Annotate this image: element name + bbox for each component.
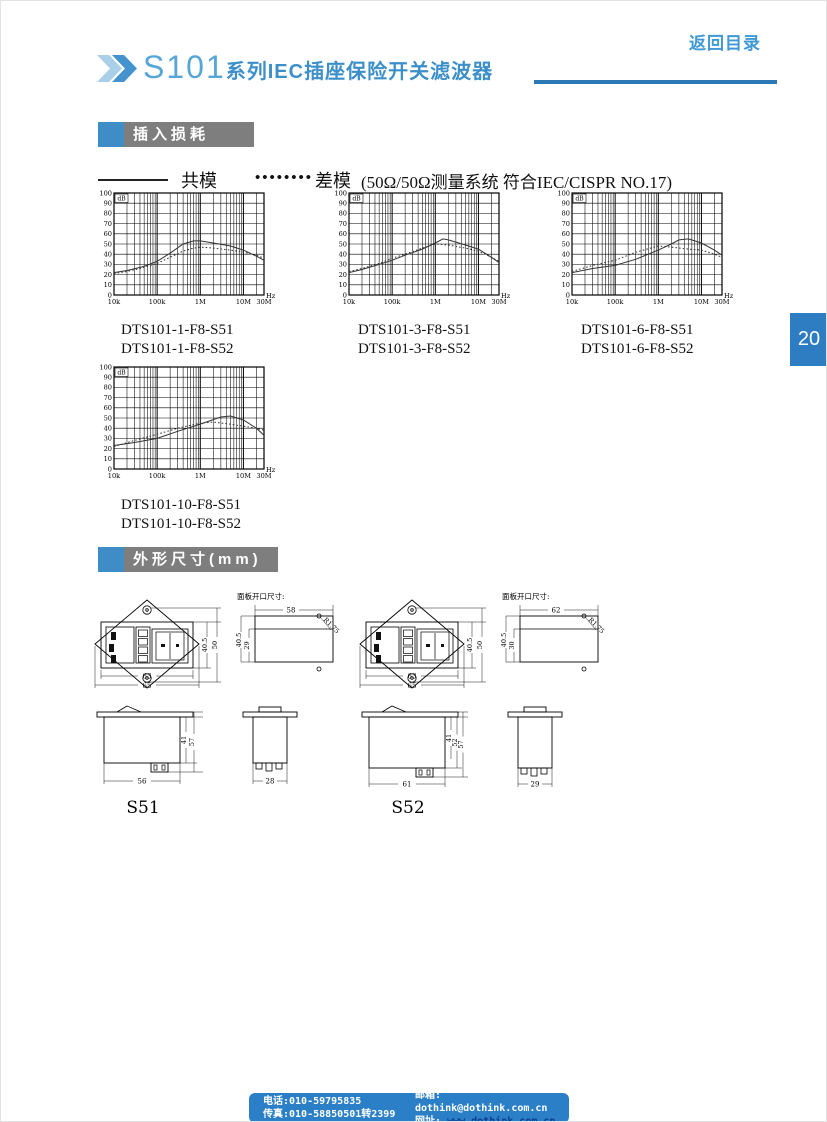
dimension-label: R1.75 bbox=[322, 616, 341, 635]
chart-caption-4: DTS101-10-F8-S51 DTS101-10-F8-S52 bbox=[121, 496, 301, 534]
dimension-label: 41 bbox=[180, 736, 188, 744]
svg-text:40: 40 bbox=[562, 251, 570, 259]
svg-text:10k: 10k bbox=[108, 298, 121, 306]
footer-contact-bar: 电话:010-59795835 传真:010-58850501转2399 邮箱:… bbox=[249, 1093, 569, 1122]
dimension-label: 40.5 bbox=[466, 638, 474, 652]
model-code: DTS101-1-F8-S52 bbox=[121, 340, 301, 359]
svg-text:100: 100 bbox=[557, 189, 570, 197]
web-label: 网址: bbox=[415, 1116, 441, 1122]
dimension-label: 29 bbox=[531, 781, 540, 789]
dimension-label: 面板开口尺寸: bbox=[237, 591, 285, 601]
page-number-tab: 20 bbox=[790, 313, 827, 366]
section-dimensions: 外形尺寸(mm) bbox=[98, 547, 278, 572]
website-link[interactable]: www.dothink.com.cn bbox=[447, 1116, 555, 1122]
model-code: DTS101-3-F8-S51 bbox=[358, 321, 538, 340]
svg-text:1M: 1M bbox=[195, 298, 206, 306]
svg-text:20: 20 bbox=[104, 445, 112, 453]
dimension-label: S52 bbox=[391, 798, 424, 818]
svg-text:60: 60 bbox=[104, 230, 112, 238]
svg-text:30: 30 bbox=[104, 435, 112, 443]
svg-text:dB: dB bbox=[117, 196, 126, 203]
svg-text:100k: 100k bbox=[149, 472, 167, 480]
dimension-label: 50 bbox=[476, 641, 484, 649]
svg-text:90: 90 bbox=[104, 374, 112, 382]
back-to-toc-link[interactable]: 返回目录 bbox=[689, 29, 761, 54]
model-code: DTS101-10-F8-S51 bbox=[121, 496, 301, 515]
svg-text:1M: 1M bbox=[195, 472, 206, 480]
section-marker-square bbox=[98, 122, 124, 147]
svg-text:50: 50 bbox=[104, 414, 112, 422]
chart-caption-3: DTS101-6-F8-S51 DTS101-6-F8-S52 bbox=[581, 321, 761, 359]
fax-number: 传真:010-58850501转2399 bbox=[263, 1108, 415, 1121]
diff-mode-line-sample: •••••••• bbox=[255, 170, 313, 187]
svg-text:Hz: Hz bbox=[266, 292, 276, 300]
svg-text:100k: 100k bbox=[607, 298, 625, 306]
svg-text:20: 20 bbox=[562, 271, 570, 279]
svg-text:10M: 10M bbox=[694, 298, 709, 306]
svg-text:dB: dB bbox=[575, 196, 584, 203]
svg-text:dB: dB bbox=[117, 370, 126, 377]
svg-text:50: 50 bbox=[104, 240, 112, 248]
svg-text:10: 10 bbox=[339, 281, 347, 289]
svg-text:60: 60 bbox=[104, 404, 112, 412]
svg-text:40: 40 bbox=[104, 425, 112, 433]
dimension-label: 56 bbox=[138, 778, 147, 786]
svg-text:70: 70 bbox=[562, 220, 570, 228]
svg-text:10M: 10M bbox=[236, 298, 251, 306]
dimension-label: R1.75 bbox=[587, 616, 606, 635]
svg-text:20: 20 bbox=[104, 271, 112, 279]
svg-text:10k: 10k bbox=[108, 472, 121, 480]
chart-svg: 0102030405060708090100dB10k100k1M10M30MH… bbox=[96, 186, 276, 316]
svg-text:100k: 100k bbox=[149, 298, 167, 306]
email-label: 邮箱: bbox=[415, 1090, 441, 1101]
footer-links: 邮箱: dothink@dothink.com.cn 网址: www.dothi… bbox=[415, 1089, 559, 1122]
section-marker-square bbox=[98, 547, 124, 572]
dimension-label: 57 bbox=[457, 740, 465, 748]
series-title-text: 系列IEC插座保险开关滤波器 bbox=[226, 55, 493, 84]
svg-text:80: 80 bbox=[562, 210, 570, 218]
series-name: S101 bbox=[143, 49, 226, 86]
s51-dimension-drawing: 636540.550面板开口尺寸:5840.529R1.7541575628S5… bbox=[91, 586, 341, 821]
svg-text:100: 100 bbox=[99, 189, 112, 197]
svg-text:70: 70 bbox=[104, 220, 112, 228]
dimension-label: 65 bbox=[408, 682, 417, 690]
section-title: 插入损耗 bbox=[124, 122, 254, 147]
svg-text:50: 50 bbox=[562, 240, 570, 248]
svg-text:20: 20 bbox=[339, 271, 347, 279]
svg-text:90: 90 bbox=[104, 200, 112, 208]
model-code: DTS101-6-F8-S52 bbox=[581, 340, 761, 359]
chart-svg: 0102030405060708090100dB10k100k1M10M30MH… bbox=[331, 186, 511, 316]
dimension-label: 40.5 bbox=[500, 633, 508, 647]
drawing-svg: 636540.550面板开口尺寸:6240.530R1.754152576129… bbox=[356, 586, 606, 821]
model-code: DTS101-1-F8-S51 bbox=[121, 321, 301, 340]
dimension-label: 57 bbox=[188, 738, 196, 746]
svg-text:10: 10 bbox=[104, 455, 112, 463]
svg-text:40: 40 bbox=[104, 251, 112, 259]
page-title: S101 系列IEC插座保险开关滤波器 bbox=[97, 49, 493, 86]
insertion-loss-chart-2: 0102030405060708090100dB10k100k1M10M30MH… bbox=[331, 186, 511, 316]
dimension-label: 50 bbox=[211, 641, 219, 649]
dimension-label: 28 bbox=[266, 778, 275, 786]
chart-caption-1: DTS101-1-F8-S51 DTS101-1-F8-S52 bbox=[121, 321, 301, 359]
svg-text:70: 70 bbox=[104, 394, 112, 402]
svg-text:60: 60 bbox=[339, 230, 347, 238]
model-code: DTS101-3-F8-S52 bbox=[358, 340, 538, 359]
model-code: DTS101-6-F8-S51 bbox=[581, 321, 761, 340]
svg-text:dB: dB bbox=[352, 196, 361, 203]
dimension-label: S51 bbox=[126, 798, 159, 818]
svg-text:50: 50 bbox=[339, 240, 347, 248]
svg-text:10: 10 bbox=[104, 281, 112, 289]
svg-text:100k: 100k bbox=[384, 298, 402, 306]
section-title: 外形尺寸(mm) bbox=[124, 547, 278, 572]
dimension-label: 30 bbox=[508, 641, 516, 649]
dimension-label: 面板开口尺寸: bbox=[502, 591, 550, 601]
svg-text:90: 90 bbox=[562, 200, 570, 208]
drawing-svg: 636540.550面板开口尺寸:5840.529R1.7541575628S5… bbox=[91, 586, 341, 821]
common-mode-line-sample bbox=[98, 179, 168, 181]
insertion-loss-chart-3: 0102030405060708090100dB10k100k1M10M30MH… bbox=[554, 186, 734, 316]
svg-text:1M: 1M bbox=[430, 298, 441, 306]
dimension-label: 40.5 bbox=[201, 638, 209, 652]
model-code: DTS101-10-F8-S52 bbox=[121, 515, 301, 534]
double-chevron-icon bbox=[97, 55, 138, 87]
svg-text:90: 90 bbox=[339, 200, 347, 208]
svg-text:Hz: Hz bbox=[501, 292, 511, 300]
insertion-loss-chart-1: 0102030405060708090100dB10k100k1M10M30MH… bbox=[96, 186, 276, 316]
footer-phone-fax: 电话:010-59795835 传真:010-58850501转2399 bbox=[263, 1095, 415, 1121]
section-insertion-loss: 插入损耗 bbox=[98, 122, 254, 147]
svg-text:10M: 10M bbox=[236, 472, 251, 480]
svg-text:80: 80 bbox=[104, 384, 112, 392]
svg-text:Hz: Hz bbox=[266, 466, 276, 474]
svg-text:40: 40 bbox=[339, 251, 347, 259]
title-underline bbox=[534, 80, 777, 84]
chart-svg: 0102030405060708090100dB10k100k1M10M30MH… bbox=[96, 360, 276, 490]
svg-text:30: 30 bbox=[562, 261, 570, 269]
svg-text:80: 80 bbox=[104, 210, 112, 218]
svg-text:30: 30 bbox=[339, 261, 347, 269]
svg-text:60: 60 bbox=[562, 230, 570, 238]
svg-text:1M: 1M bbox=[653, 298, 664, 306]
dimension-label: 29 bbox=[243, 641, 251, 649]
svg-text:70: 70 bbox=[339, 220, 347, 228]
s52-dimension-drawing: 636540.550面板开口尺寸:6240.530R1.754152576129… bbox=[356, 586, 606, 821]
svg-text:100: 100 bbox=[334, 189, 347, 197]
email-link[interactable]: dothink@dothink.com.cn bbox=[415, 1103, 547, 1114]
datasheet-page: 返回目录 S101 系列IEC插座保险开关滤波器 插入损耗 共模 •••••••… bbox=[0, 0, 827, 1122]
svg-text:100: 100 bbox=[99, 363, 112, 371]
phone-number: 电话:010-59795835 bbox=[263, 1095, 415, 1108]
dimension-label: 63 bbox=[408, 673, 417, 681]
svg-text:30: 30 bbox=[104, 261, 112, 269]
svg-text:Hz: Hz bbox=[724, 292, 734, 300]
svg-text:10: 10 bbox=[562, 281, 570, 289]
dimension-label: 63 bbox=[143, 673, 152, 681]
dimension-label: 65 bbox=[143, 682, 152, 690]
svg-text:10M: 10M bbox=[471, 298, 486, 306]
insertion-loss-chart-4: 0102030405060708090100dB10k100k1M10M30MH… bbox=[96, 360, 276, 490]
dimension-label: 61 bbox=[403, 781, 412, 789]
svg-text:80: 80 bbox=[339, 210, 347, 218]
chart-caption-2: DTS101-3-F8-S51 DTS101-3-F8-S52 bbox=[358, 321, 538, 359]
svg-text:10k: 10k bbox=[566, 298, 579, 306]
dimension-label: 58 bbox=[287, 607, 296, 615]
svg-text:10k: 10k bbox=[343, 298, 356, 306]
chart-svg: 0102030405060708090100dB10k100k1M10M30MH… bbox=[554, 186, 734, 316]
dimension-label: 62 bbox=[552, 607, 561, 615]
dimension-label: 40.5 bbox=[235, 633, 243, 647]
